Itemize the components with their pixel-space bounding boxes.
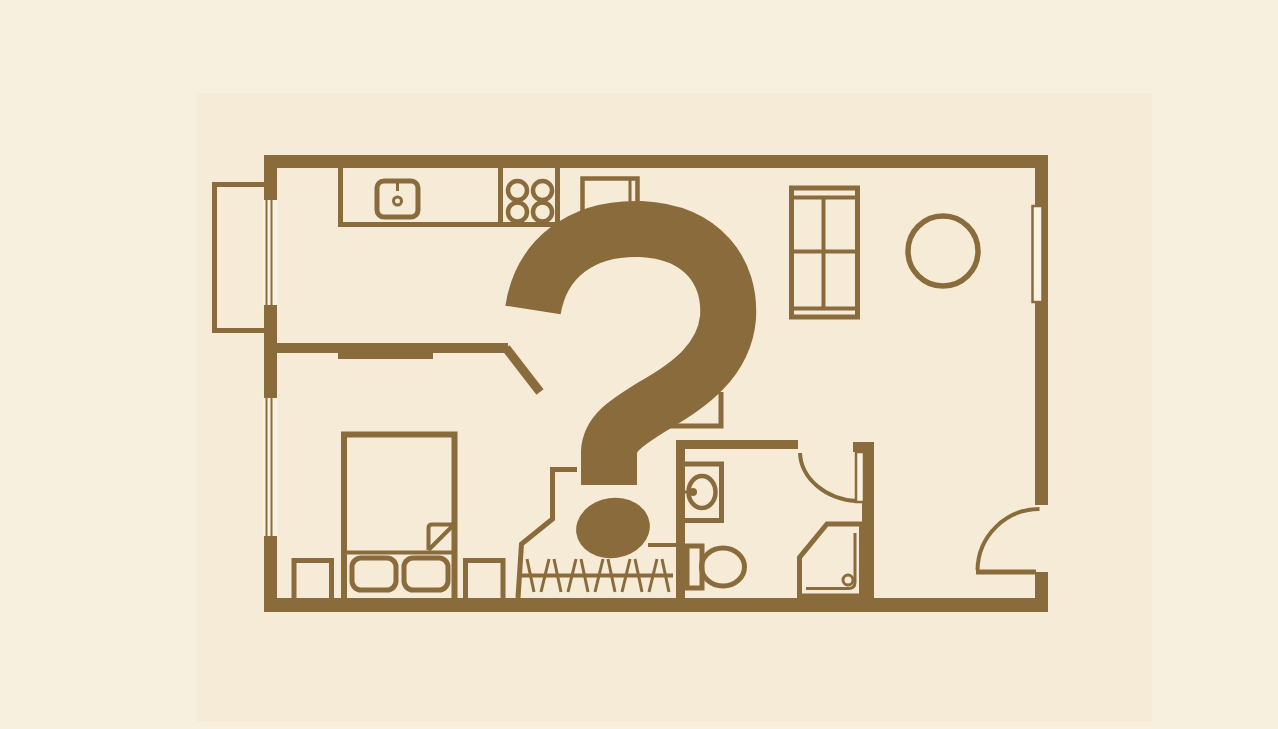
bed-outline [344, 435, 455, 599]
door-opening [1035, 505, 1048, 572]
shower [800, 524, 862, 596]
bathroom-door-swing-arc [800, 453, 856, 501]
entry-door [976, 505, 1048, 572]
burner-icon [533, 203, 552, 222]
shower-stall [800, 524, 862, 596]
window-glass [263, 398, 277, 536]
closet [520, 559, 673, 592]
pillow [404, 558, 448, 590]
pillow [352, 558, 396, 590]
wall-bottom [265, 598, 1048, 612]
question-mark-dot [572, 493, 654, 563]
toilet-bowl [702, 548, 745, 586]
closet-partition [518, 470, 577, 599]
nightstand [466, 561, 504, 599]
stove-burners [508, 181, 552, 222]
illustration-canvas [0, 0, 1278, 729]
kitchen-window [263, 200, 277, 305]
sofa [791, 188, 858, 317]
bathroom-faucet-dot [689, 488, 697, 496]
bathroom-door-leaf [856, 452, 864, 502]
living-room [791, 188, 978, 317]
bedroom-wall [277, 343, 508, 353]
balcony [215, 185, 266, 331]
bedroom [294, 435, 503, 599]
round-table [908, 216, 978, 286]
burner-icon [508, 203, 527, 222]
nightstand [294, 561, 332, 599]
toilet [687, 546, 745, 588]
bathroom-sink [685, 464, 722, 521]
sink-drain-icon [394, 197, 402, 205]
wall-top [265, 155, 1048, 168]
question-mark-overlay [533, 229, 728, 563]
window-glass [263, 200, 277, 305]
blanket-fold [429, 525, 455, 551]
bathroom [676, 440, 874, 598]
burner-icon [508, 181, 527, 200]
burner-icon [533, 181, 552, 200]
floor-plan-illustration [0, 0, 1278, 729]
bedroom-wall-ledge [338, 352, 433, 359]
shower-drain-icon [843, 575, 853, 585]
bedroom-door-leaf [506, 348, 540, 392]
window-glass [1033, 206, 1043, 302]
bathroom-wall-left [676, 440, 685, 598]
door-swing-arc [978, 509, 1040, 570]
living-room-window [1033, 206, 1043, 302]
bedroom-window [263, 398, 277, 536]
bathroom-wall-top [676, 440, 798, 449]
